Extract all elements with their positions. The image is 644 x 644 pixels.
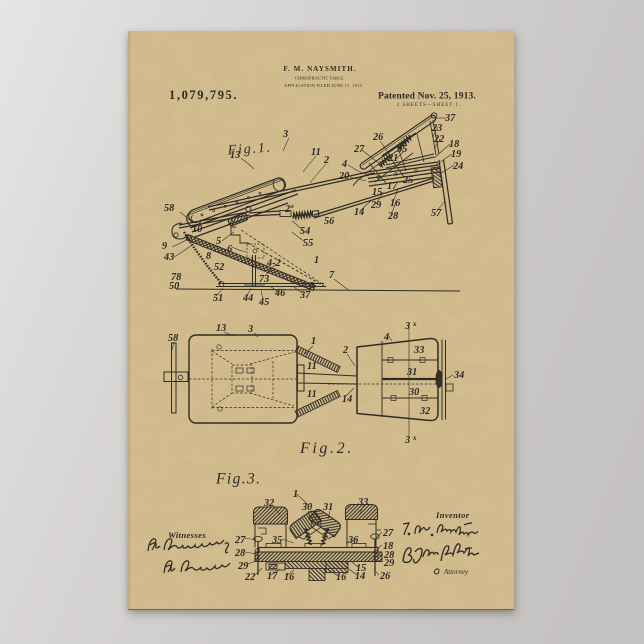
svg-text:34: 34 xyxy=(453,370,464,381)
svg-text:9: 9 xyxy=(162,241,167,252)
svg-text:5: 5 xyxy=(216,236,221,247)
svg-text:26: 26 xyxy=(379,571,391,582)
svg-text:27: 27 xyxy=(353,144,365,155)
svg-text:43: 43 xyxy=(163,252,174,263)
svg-text:10: 10 xyxy=(192,224,202,235)
svg-text:14: 14 xyxy=(342,394,352,405)
svg-text:52: 52 xyxy=(214,262,224,273)
svg-text:1,079,795.: 1,079,795. xyxy=(169,88,238,102)
svg-text:17: 17 xyxy=(387,181,398,192)
svg-text:29: 29 xyxy=(237,561,248,572)
svg-text:Fig.2.: Fig.2. xyxy=(299,440,354,457)
svg-text:25: 25 xyxy=(402,175,413,186)
svg-text:35: 35 xyxy=(271,535,282,546)
svg-text:2 SHEETS—SHEET 1.: 2 SHEETS—SHEET 1. xyxy=(397,103,462,108)
svg-text:22: 22 xyxy=(433,134,444,145)
svg-text:23: 23 xyxy=(431,123,442,134)
svg-text:31: 31 xyxy=(406,367,417,378)
svg-text:28: 28 xyxy=(234,548,245,559)
svg-text:31: 31 xyxy=(322,502,333,513)
svg-text:16: 16 xyxy=(284,572,295,583)
svg-text:46: 46 xyxy=(274,288,286,299)
svg-text:Inventor: Inventor xyxy=(435,510,470,520)
svg-text:58: 58 xyxy=(168,333,178,344)
svg-text:57: 57 xyxy=(431,208,442,219)
svg-text:50: 50 xyxy=(169,281,179,292)
svg-text:28: 28 xyxy=(387,211,398,222)
svg-text:56: 56 xyxy=(324,216,335,227)
svg-text:35: 35 xyxy=(396,144,407,155)
svg-text:Patented Nov. 25, 1913.: Patented Nov. 25, 1913. xyxy=(378,92,476,102)
svg-text:1: 1 xyxy=(293,489,298,500)
svg-text:x: x xyxy=(412,434,417,442)
svg-text:1: 1 xyxy=(314,255,319,266)
svg-text:54: 54 xyxy=(300,226,310,237)
svg-text:CHIROPRACTIC TABLE.: CHIROPRACTIC TABLE. xyxy=(295,76,345,81)
svg-text:11: 11 xyxy=(307,389,317,400)
svg-text:Attorney: Attorney xyxy=(443,568,469,576)
svg-text:33: 33 xyxy=(413,345,424,356)
svg-text:Witnesses: Witnesses xyxy=(168,530,206,540)
svg-text:4: 4 xyxy=(383,332,389,343)
svg-text:22: 22 xyxy=(244,572,255,583)
svg-text:30: 30 xyxy=(408,387,419,398)
svg-text:16: 16 xyxy=(336,572,347,583)
svg-text:Fig.3.: Fig.3. xyxy=(215,471,261,488)
svg-text:44: 44 xyxy=(242,293,253,304)
svg-text:8: 8 xyxy=(206,251,211,262)
svg-text:37: 37 xyxy=(444,113,456,124)
svg-text:11: 11 xyxy=(311,147,321,158)
svg-text:3: 3 xyxy=(404,435,410,446)
svg-text:32: 32 xyxy=(419,406,430,417)
svg-text:3: 3 xyxy=(247,324,253,335)
svg-text:29: 29 xyxy=(370,200,381,211)
svg-text:27: 27 xyxy=(382,528,394,539)
svg-text:3: 3 xyxy=(282,129,288,140)
svg-text:F. M. NAYSMITH.: F. M. NAYSMITH. xyxy=(283,65,356,73)
svg-text:37: 37 xyxy=(299,290,311,301)
svg-text:13: 13 xyxy=(230,150,240,161)
svg-text:16: 16 xyxy=(390,198,401,209)
svg-text:51: 51 xyxy=(213,293,223,304)
svg-text:6: 6 xyxy=(227,244,233,255)
svg-text:2: 2 xyxy=(323,155,329,166)
svg-text:15: 15 xyxy=(372,187,382,198)
svg-text:20: 20 xyxy=(338,171,349,182)
svg-text:55: 55 xyxy=(303,238,313,249)
svg-text:13: 13 xyxy=(216,323,226,334)
svg-text:3: 3 xyxy=(404,321,410,332)
svg-text:27: 27 xyxy=(234,535,246,546)
svg-text:7: 7 xyxy=(329,270,335,281)
svg-text:45: 45 xyxy=(258,297,269,308)
svg-text:11: 11 xyxy=(307,361,317,372)
svg-text:73: 73 xyxy=(259,274,269,285)
svg-text:19: 19 xyxy=(451,149,461,160)
svg-text:32: 32 xyxy=(263,498,274,509)
svg-text:17: 17 xyxy=(267,571,278,582)
svg-text:58: 58 xyxy=(164,203,174,214)
svg-text:2: 2 xyxy=(342,345,348,356)
svg-text:4-2: 4-2 xyxy=(266,258,281,269)
svg-text:14: 14 xyxy=(354,207,364,218)
svg-text:36: 36 xyxy=(347,535,359,546)
svg-text:33: 33 xyxy=(357,497,368,508)
svg-text:x: x xyxy=(412,320,417,328)
svg-text:2ª: 2ª xyxy=(284,204,294,215)
svg-text:14: 14 xyxy=(355,571,365,582)
svg-text:24: 24 xyxy=(452,161,463,172)
svg-text:26: 26 xyxy=(372,132,384,143)
svg-text:29: 29 xyxy=(383,558,394,569)
svg-text:1: 1 xyxy=(311,336,316,347)
svg-text:4: 4 xyxy=(341,159,347,170)
svg-text:30: 30 xyxy=(301,502,312,513)
